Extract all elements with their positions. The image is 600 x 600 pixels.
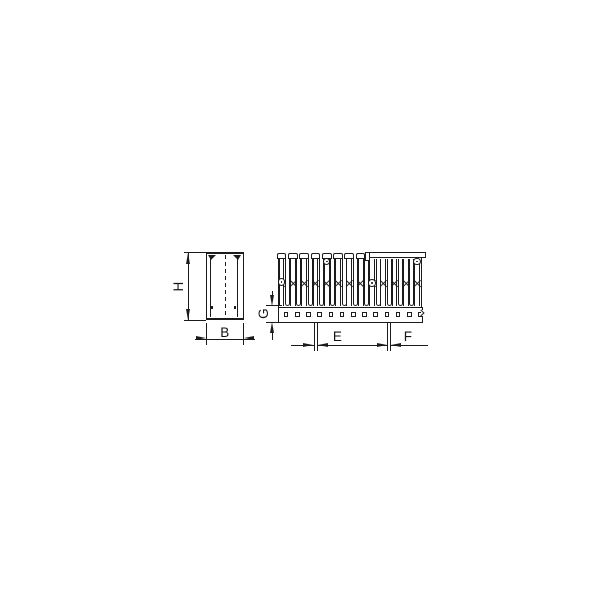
finger-cap — [311, 253, 321, 259]
base-slot-hole — [407, 312, 412, 317]
base-slot-hole — [295, 312, 300, 317]
finger-cap — [356, 253, 366, 259]
screw-hole-center — [371, 282, 373, 284]
dim-arrow-right-icon — [196, 336, 206, 340]
dim-label-slot-cover: F — [400, 329, 417, 344]
dim-arrow-up-icon — [186, 253, 190, 264]
base-slot-hole — [351, 312, 356, 317]
base-slot-hole — [385, 312, 390, 317]
base-slot-hole — [317, 312, 322, 317]
finger-cap — [288, 253, 298, 259]
finger-cap — [344, 253, 354, 259]
base-slot-hole — [329, 312, 334, 317]
base-slot-hole — [284, 312, 289, 317]
inner-wall-line-right — [237, 256, 238, 318]
dim-label-base-height: G — [256, 305, 271, 322]
finger-cap — [277, 253, 287, 259]
corner-lug-left — [208, 255, 216, 263]
base-slot-hole — [396, 312, 401, 317]
dim-arrow-left-icon — [244, 336, 254, 340]
base-slot-hole — [373, 312, 378, 317]
dim-arrow-right-icon — [303, 343, 313, 347]
centerline — [225, 255, 226, 318]
extension-line — [243, 323, 244, 345]
finger-cap — [299, 253, 309, 259]
dimension-line — [272, 333, 273, 340]
extension-line — [206, 323, 207, 345]
dim-arrow-down-icon — [186, 309, 190, 320]
base-slot-hole — [362, 312, 367, 317]
dim-label-slot-open: E — [329, 329, 346, 344]
dim-label-width: B — [216, 325, 233, 340]
finger-cap — [333, 253, 343, 259]
dim-arrow-left-icon — [318, 343, 328, 347]
dim-arrow-right-icon — [377, 343, 387, 347]
cover-end-tab — [365, 252, 370, 261]
wall-nub-right — [234, 306, 237, 309]
dim-label-height: H — [171, 278, 186, 295]
duct-right-edge — [421, 258, 422, 308]
base-slot-hole — [306, 312, 311, 317]
wall-nub-left — [211, 306, 214, 309]
dim-arrow-up-icon — [270, 322, 274, 333]
technical-drawing-canvas: H B G — [0, 0, 600, 600]
base-slot-hole — [340, 312, 345, 317]
corner-lug-right — [233, 255, 241, 263]
